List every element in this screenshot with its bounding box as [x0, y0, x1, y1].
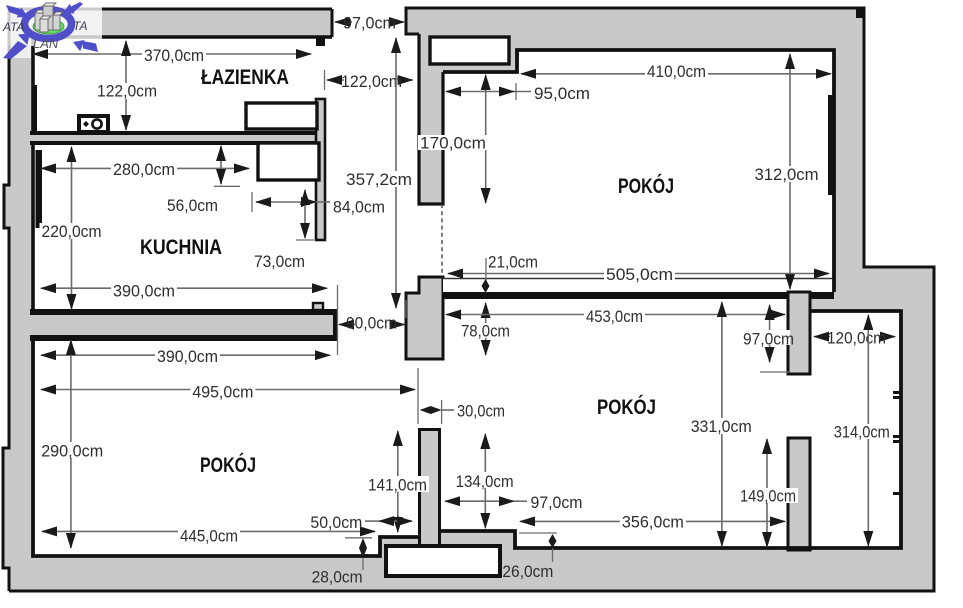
svg-text:84,0cm: 84,0cm	[333, 198, 385, 217]
svg-text:290,0cm: 290,0cm	[41, 442, 103, 461]
svg-text:390,0cm: 390,0cm	[113, 282, 175, 301]
svg-text:314,0cm: 314,0cm	[834, 423, 890, 442]
svg-text:97,0cm: 97,0cm	[531, 493, 583, 512]
svg-text:56,0cm: 56,0cm	[167, 196, 218, 215]
svg-text:90,0cm: 90,0cm	[346, 314, 397, 333]
svg-text:370,0cm: 370,0cm	[144, 46, 204, 65]
svg-text:30,0cm: 30,0cm	[457, 402, 505, 421]
svg-text:78,0cm: 78,0cm	[461, 322, 510, 341]
svg-text:356,0cm: 356,0cm	[622, 513, 684, 532]
svg-text:331,0cm: 331,0cm	[691, 417, 752, 436]
svg-text:312,0cm: 312,0cm	[755, 165, 819, 184]
svg-text:357,2cm: 357,2cm	[346, 170, 412, 189]
svg-text:POKÓJ: POKÓJ	[200, 453, 256, 477]
svg-text:495,0cm: 495,0cm	[192, 383, 253, 402]
svg-text:141,0cm: 141,0cm	[368, 476, 427, 495]
svg-text:LAN: LAN	[33, 36, 59, 51]
svg-text:50,0cm: 50,0cm	[310, 513, 362, 532]
svg-text:ŁAZIENKA: ŁAZIENKA	[201, 66, 289, 89]
svg-text:122,0cm: 122,0cm	[341, 72, 402, 91]
svg-text:453,0cm: 453,0cm	[586, 307, 643, 326]
svg-text:95,0cm: 95,0cm	[534, 84, 590, 103]
svg-text:280,0cm: 280,0cm	[113, 160, 175, 179]
svg-text:410,0cm: 410,0cm	[647, 62, 706, 81]
svg-text:97,0cm: 97,0cm	[343, 14, 396, 33]
svg-text:170,0cm: 170,0cm	[420, 134, 486, 153]
svg-text:134,0cm: 134,0cm	[456, 472, 514, 491]
svg-text:TA: TA	[73, 19, 87, 33]
svg-text:28,0cm: 28,0cm	[312, 568, 363, 587]
svg-text:122,0cm: 122,0cm	[97, 82, 157, 101]
svg-text:390,0cm: 390,0cm	[157, 347, 218, 366]
svg-text:445,0cm: 445,0cm	[180, 527, 238, 546]
svg-text:97,0cm: 97,0cm	[743, 330, 794, 349]
svg-text:ATA: ATA	[2, 20, 25, 34]
svg-text:505,0cm: 505,0cm	[606, 265, 673, 284]
svg-text:POKÓJ: POKÓJ	[597, 395, 656, 419]
svg-text:21,0cm: 21,0cm	[488, 253, 538, 272]
svg-text:220,0cm: 220,0cm	[42, 222, 102, 241]
svg-text:120,0cm: 120,0cm	[827, 329, 886, 348]
svg-text:POKÓJ: POKÓJ	[618, 174, 674, 198]
svg-text:73,0cm: 73,0cm	[254, 252, 305, 271]
svg-text:26,0cm: 26,0cm	[502, 562, 553, 581]
svg-text:149,0cm: 149,0cm	[740, 487, 796, 506]
svg-text:KUCHNIA: KUCHNIA	[140, 236, 222, 259]
